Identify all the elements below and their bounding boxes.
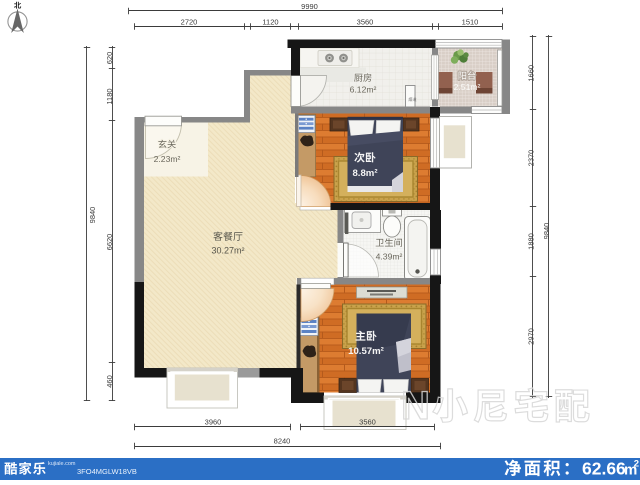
svg-text:2.23m²: 2.23m² [154,154,181,164]
svg-text:8.8m²: 8.8m² [352,168,377,179]
svg-text:2720: 2720 [181,18,198,27]
svg-text:3560: 3560 [357,18,374,27]
svg-text:10.57m²: 10.57m² [348,346,384,357]
svg-text:kujiale.com: kujiale.com [48,461,76,467]
svg-text:620: 620 [105,52,114,65]
svg-text:2370: 2370 [526,150,535,167]
svg-text:1880: 1880 [526,233,535,250]
svg-text:2.51m²: 2.51m² [454,82,481,92]
svg-text:1510: 1510 [462,18,479,27]
svg-text:1120: 1120 [262,18,278,27]
svg-text:2: 2 [634,459,639,470]
svg-text:1180: 1180 [105,88,114,104]
svg-text:9840: 9840 [88,207,97,224]
svg-text:1660: 1660 [526,65,535,82]
svg-text:3960: 3960 [205,418,222,427]
svg-text:4.39m²: 4.39m² [376,252,403,262]
svg-text:3560: 3560 [359,418,376,427]
svg-text:30.27m²: 30.27m² [211,246,244,256]
svg-text:460: 460 [105,375,114,388]
svg-text:9840: 9840 [542,223,551,240]
svg-text:3FO4MGLW18VB: 3FO4MGLW18VB [77,467,137,476]
svg-text:62.66: 62.66 [582,459,626,479]
svg-text:9990: 9990 [301,2,318,11]
svg-text:6620: 6620 [105,234,114,251]
svg-text:6.12m²: 6.12m² [350,85,377,95]
svg-text:2970: 2970 [526,328,535,345]
svg-text:8240: 8240 [274,437,291,446]
svg-text:N: N [401,384,430,428]
